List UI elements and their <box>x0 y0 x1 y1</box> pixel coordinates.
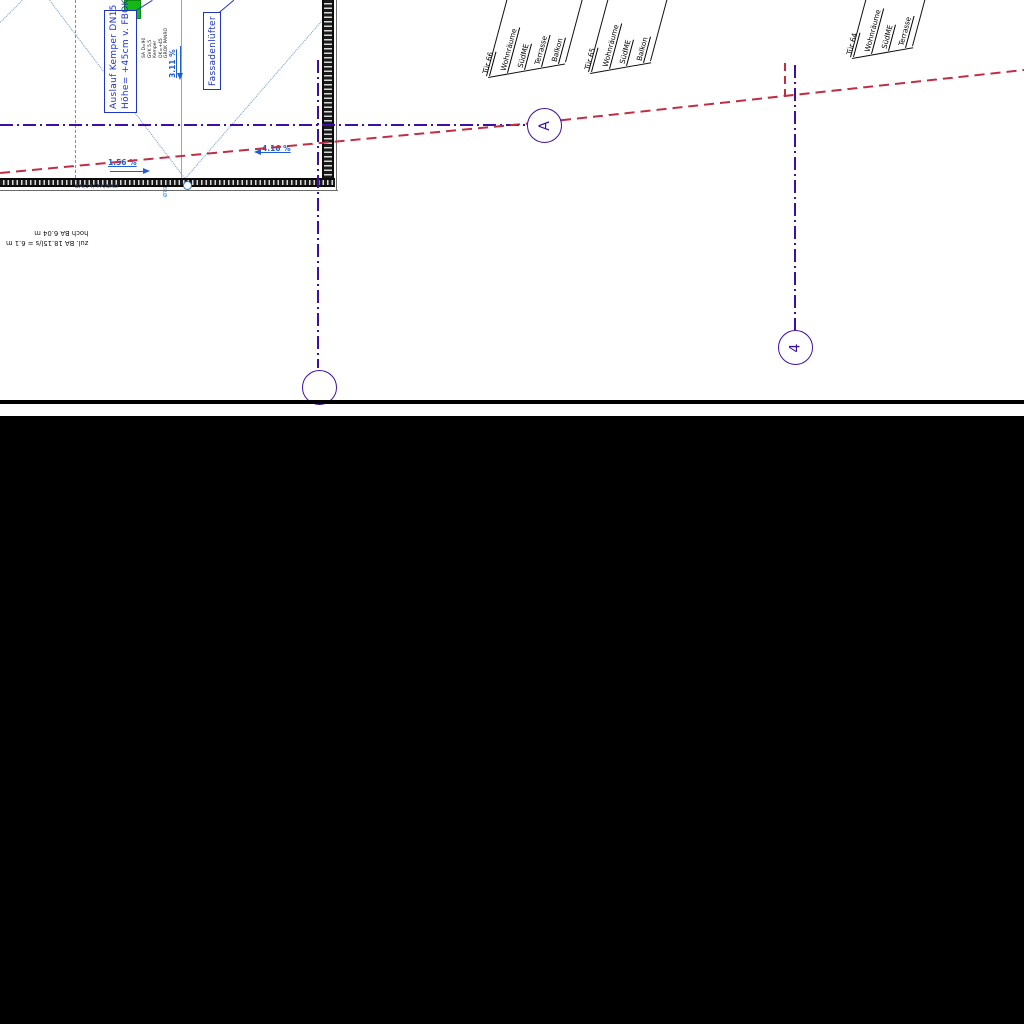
door-tag-leader-line <box>650 0 668 61</box>
grid-bubble-a-label: A <box>536 121 552 131</box>
wall-edge-note: BA(14) PA/BRD <box>75 184 119 190</box>
building-bottom-wall <box>0 178 335 187</box>
auslauf-kemper-label: Auslauf Kemper DN15 Höhe= +45cm v. FBOK <box>108 11 132 109</box>
masked-black-region <box>0 416 1024 1024</box>
slope-arrow-down-line <box>180 46 181 74</box>
door-tag-leader-line <box>565 0 583 62</box>
slope-label-vertical: 3.11 % <box>168 49 177 78</box>
cad-drawing-viewport[interactable]: SA D=90 GVK 5,5 Kemper OK=+45 GROK PANRO… <box>0 0 1024 1024</box>
slope-arrow-right-head <box>143 168 150 174</box>
slope-arrow-down-head <box>177 73 183 80</box>
door-tag-entry: SüdME <box>879 22 896 51</box>
roof-ridge-dashed-line <box>75 0 76 178</box>
roof-drain-note: SA D=90 GVK 5,5 Kemper OK=+45 GROK PANRO <box>142 2 170 58</box>
slope-arrow-left-head <box>254 149 261 155</box>
building-bottom-outer-line <box>0 190 338 191</box>
building-right-outer-line <box>336 0 337 191</box>
door-tag-entry: Terrasse <box>532 33 550 67</box>
roof-gully-note: Ø70 <box>163 187 169 197</box>
grid-axis-a-line <box>0 124 527 126</box>
grid-axis-vertical-line-2 <box>794 65 796 330</box>
grid-bubble-4-label: 4 <box>787 343 803 352</box>
grid-bubble-4: 4 <box>778 330 813 365</box>
boundary-line-vertical-segment <box>784 63 786 97</box>
grid-bubble-a: A <box>527 108 562 143</box>
door-tag-leader-line <box>912 0 926 46</box>
slope-arrow-left-line <box>260 152 288 153</box>
door-tag-entry: Balkon <box>549 35 566 64</box>
door-tag-entry: SüdME <box>617 37 634 66</box>
roof-gully-circle <box>183 181 192 190</box>
building-right-wall <box>322 0 334 183</box>
flipped-annotation: zul. BA 18.15l/s = 6.1 m hoch BA 6.04 m <box>6 228 88 248</box>
grid-axis-vertical-line-1 <box>317 60 319 368</box>
door-tag-entry: Balkon <box>634 34 651 63</box>
door-tag-entry: SüdME <box>515 41 532 70</box>
sheet-border-rule <box>0 400 1024 404</box>
fassadenluefter-leader-line <box>219 0 234 13</box>
roof-corner-line <box>0 0 23 23</box>
fassadenluefter-label: Fassadenlüfter <box>207 13 219 86</box>
boundary-line-segment-1 <box>0 121 545 174</box>
drain-channel-line <box>181 0 182 178</box>
slope-arrow-right-line <box>110 171 145 172</box>
